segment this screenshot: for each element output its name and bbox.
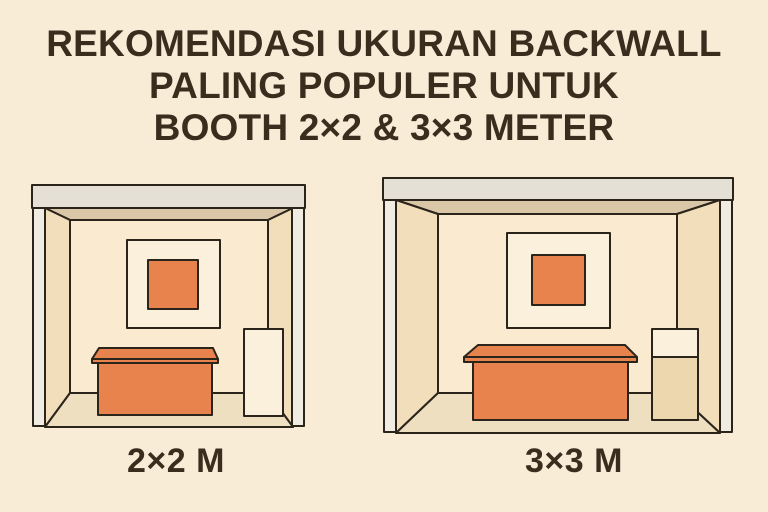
table-top (92, 348, 218, 359)
booth-fascia-panel (32, 185, 305, 208)
booth-fascia-panel (383, 178, 733, 200)
booth-3x3-label: 3×3 M (525, 442, 623, 481)
booth-left-pillar (33, 208, 45, 426)
booth-2x2-illustration (30, 183, 307, 429)
backwall-artwork (532, 255, 585, 305)
table-top (464, 345, 637, 357)
title-line-2: PALING POPULER UNTUK (0, 65, 768, 107)
title-line-1: REKOMENDASI UKURAN BACKWALL (0, 23, 768, 65)
booth-left-pillar (384, 200, 396, 432)
booth-left-wall (45, 208, 70, 427)
storage-counter (244, 329, 283, 416)
page-title: REKOMENDASI UKURAN BACKWALL PALING POPUL… (0, 23, 768, 149)
booth-3x3-illustration (381, 176, 735, 435)
booth-ceiling (396, 200, 720, 214)
booth-right-pillar (720, 200, 732, 432)
infographic-canvas: REKOMENDASI UKURAN BACKWALL PALING POPUL… (0, 0, 768, 512)
backwall-artwork (148, 260, 198, 309)
table-body (98, 363, 212, 415)
table-body (473, 362, 628, 420)
booth-2x2-label: 2×2 M (127, 442, 225, 481)
title-line-3: BOOTH 2×2 & 3×3 METER (0, 107, 768, 149)
storage-counter-top (652, 329, 698, 357)
booth-right-pillar (292, 208, 304, 426)
storage-counter-bottom (652, 357, 698, 420)
booth-ceiling (45, 208, 293, 220)
